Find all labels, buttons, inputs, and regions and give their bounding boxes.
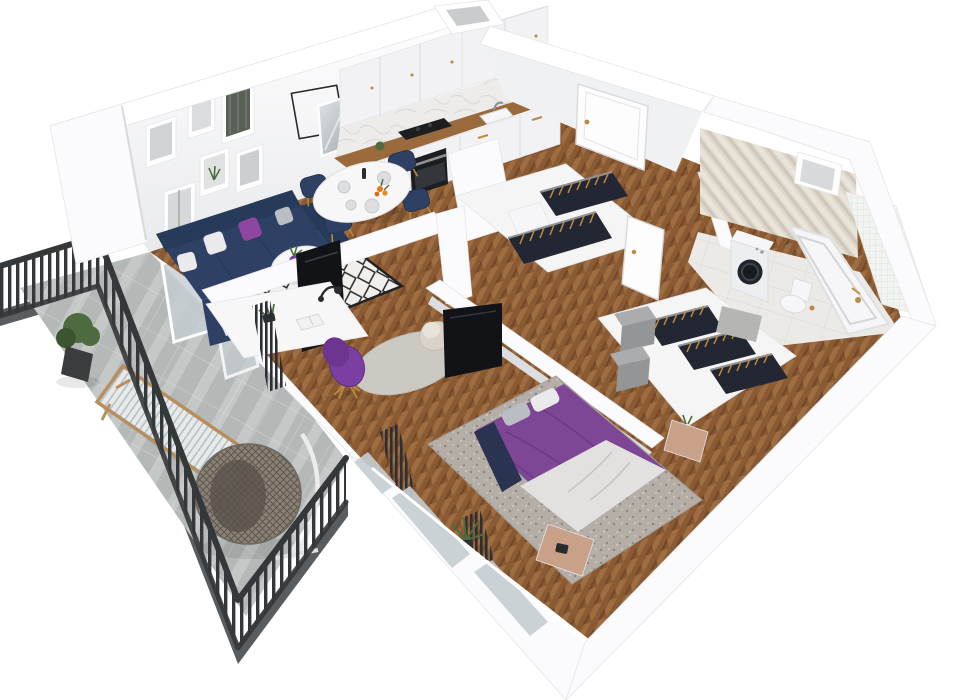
plate (338, 181, 350, 193)
picture-frame (236, 144, 263, 193)
plate (378, 172, 391, 185)
door-handle (585, 120, 590, 125)
floorplan-svg (0, 0, 961, 700)
plant-foliage (56, 328, 76, 348)
herb-pot (376, 142, 385, 151)
plate (365, 199, 379, 213)
tub-faucet (855, 297, 861, 303)
candlestick (362, 168, 366, 179)
chair-opening (210, 460, 266, 532)
toilet-paper-holder (810, 306, 815, 311)
apartment-3d-floorplan (0, 0, 961, 700)
plate (346, 200, 356, 210)
plant-foliage (80, 326, 100, 346)
bathroom-door (622, 216, 664, 300)
door-handle (632, 250, 636, 254)
